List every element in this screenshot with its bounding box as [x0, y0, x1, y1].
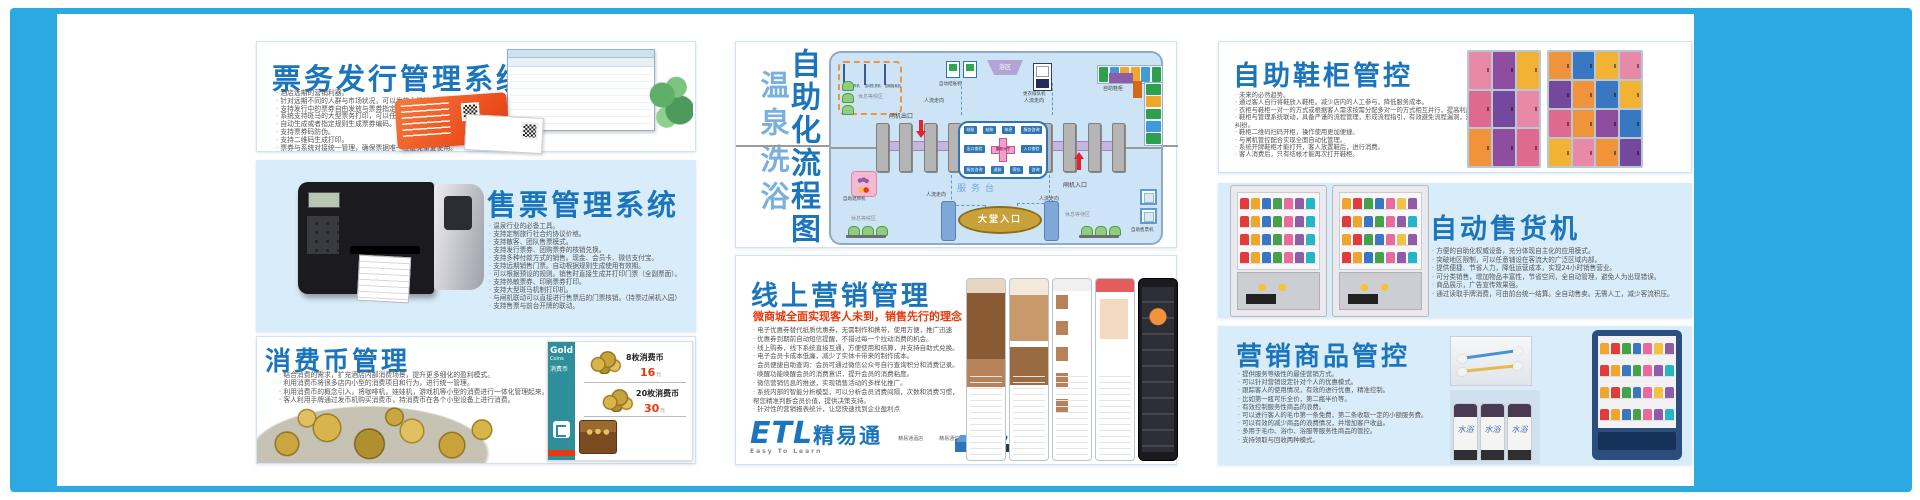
bullet-list: 电子优惠券替代纸质优惠券，无需制作和携带，使用方便，推广迅速优惠券到期前自动短信…	[753, 326, 965, 414]
phone-screenshot	[1052, 278, 1092, 461]
color-cell	[1549, 52, 1571, 79]
color-cell	[1262, 234, 1271, 245]
plant-decoration	[649, 74, 693, 134]
color-cell	[1620, 110, 1642, 137]
bottle-image: 水浴	[1453, 403, 1478, 461]
color-cell	[1240, 198, 1249, 209]
color-cell	[1611, 343, 1620, 354]
bullet-item: 跟踪客人的使用情况，有效的进行优惠，精准控制。	[1238, 386, 1448, 394]
coin-price-card: Gold Coins 消费币 8枚消费币 16 元 20枚消费币 30 元	[547, 341, 693, 461]
color-cell	[1469, 91, 1491, 128]
color-cell	[1306, 252, 1315, 263]
etl-logo-text: ETL	[750, 416, 813, 451]
return-machine-label: 自助退牌机	[843, 198, 866, 203]
color-cell	[1141, 67, 1150, 82]
exit-arrow-icon	[553, 421, 570, 438]
treasure-chest-image	[579, 420, 617, 454]
bullet-item: 会员便捷自助查询：会员可通过微信公众号自行查询积分和消费记录。	[753, 361, 965, 370]
coin-item-unit: 元	[656, 371, 661, 378]
color-cell	[1643, 365, 1652, 376]
bullet-item: 可以进行客人的毛巾第一条免费，第二条收取一定的小额服务费。	[1238, 411, 1448, 419]
vending-machine-icon: 自动售货机	[864, 65, 882, 89]
bottle-image: 水浴	[1507, 403, 1532, 461]
flow-line	[951, 205, 985, 206]
color-cell	[1364, 252, 1373, 263]
panel-ticket-issuing: 票务发行管理系统 酒店远期的营销利器。针对远期不同的人群与市场状况，可以发放大量…	[256, 41, 696, 152]
bullet-item: 唤醒功能唤醒会员的消费意识，提升会员的消费粘度。	[753, 370, 965, 379]
color-cell	[1251, 234, 1260, 245]
printer-buttons	[307, 216, 339, 254]
color-cell	[1517, 129, 1539, 166]
purple-cabinet	[1109, 73, 1133, 83]
vending-machine-image	[1230, 185, 1327, 317]
coin-item-price: 30	[644, 402, 659, 415]
service-chip: 结账	[983, 126, 996, 134]
card-brand: Gold	[548, 342, 575, 356]
service-chip: 休息	[1002, 126, 1015, 134]
snack-machine-base	[1598, 432, 1676, 450]
color-cell	[1517, 91, 1539, 128]
entry-check-chip: 入口查验	[1021, 145, 1042, 153]
bullet-item: 提供服务等级性的最佳营销方式。	[1238, 370, 1448, 378]
qr-code-icon	[521, 122, 539, 140]
wall-line	[736, 145, 829, 147]
color-cell	[1493, 129, 1515, 166]
color-cell	[1665, 365, 1674, 376]
color-cell	[1643, 387, 1652, 398]
red-strip	[548, 450, 575, 456]
color-cell	[1600, 387, 1609, 398]
color-cell	[1375, 198, 1384, 209]
bullet-item: 可分类销售，增加物品丰富性，节省空间，全自动管理，避免人为出现错误。	[1432, 273, 1682, 282]
color-cell	[1469, 52, 1491, 89]
sales-machine-icon: 自助贩卖机	[884, 65, 902, 89]
waiting-seats	[842, 81, 854, 115]
panel-subtitle: 微商城全面实现客人未到，销售先行的理念	[753, 308, 962, 324]
color-cell	[1273, 234, 1282, 245]
color-cell	[1620, 81, 1642, 108]
color-cell	[1600, 409, 1609, 420]
bullet-item: 方便的自助化权威设备，充分体现自主化的应用模式。	[1432, 247, 1682, 256]
auto-checkout-label: 自动结账机	[939, 83, 962, 88]
color-cell	[1306, 216, 1315, 227]
color-cell	[1493, 52, 1515, 89]
color-cell	[1573, 139, 1595, 166]
color-cell	[1375, 216, 1384, 227]
etl-logo-cn: 精易通	[813, 424, 882, 448]
color-cell	[1240, 216, 1249, 227]
bullet-item: 支持售票与前台开牌的联动。	[489, 302, 691, 310]
gate-entry-label: 闸机入口	[1063, 183, 1087, 189]
color-cell	[1386, 252, 1395, 263]
panel-ticket-sales: 售票管理系统 温泉行业的必备工具。支持定制旅行社合约协议价格。支持散客、团队售票…	[256, 160, 696, 332]
color-cell	[1284, 252, 1293, 263]
color-cell	[1240, 234, 1249, 245]
lobby-pillar	[941, 201, 956, 241]
flow-direction-label: 人流走向	[926, 193, 946, 198]
panel-consumption-coin: 消费币管理 结合消费的需求，扩充酒店内部消费场景，提升更多细化的盈利模式。利用消…	[256, 336, 696, 464]
divider	[584, 382, 686, 383]
color-cell	[1375, 234, 1384, 245]
flow-title-vertical: 自助化流程图	[780, 48, 824, 246]
service-chip: 寄存	[1010, 166, 1023, 174]
gate-pillar	[924, 123, 937, 172]
printer-lcd	[308, 192, 340, 208]
service-chip: 服务咨询	[1021, 126, 1042, 134]
auto-checkout-machines	[946, 61, 980, 82]
color-cell	[1408, 198, 1417, 209]
panel-title: 自助鞋柜管控	[1233, 54, 1413, 93]
panel-online-marketing: 线上营销管理 微商城全面实现客人未到，销售先行的理念 电子优惠券替代纸质优惠券，…	[735, 255, 1177, 465]
locker-grid	[1467, 50, 1541, 168]
return-machine	[851, 171, 877, 197]
color-cell	[1654, 365, 1663, 376]
rest-area-label: 休息等候区	[851, 217, 876, 222]
coin-item-name: 8枚消费币	[626, 352, 664, 363]
service-box: 结账结账休息服务咨询 出口查验 入口查验 服务大厅 服务咨询退账寄存咨询	[958, 121, 1048, 179]
color-cell	[1306, 234, 1315, 245]
rest-area-label: 休息等待区	[1065, 213, 1090, 218]
coin-pile-image	[588, 350, 622, 374]
color-cell	[1633, 387, 1642, 398]
snack-vending-photo	[1592, 330, 1682, 460]
color-cell	[1573, 110, 1595, 137]
bullet-item: 支持发行票券、团购票券的核销兑换。	[489, 246, 691, 254]
bullet-item: 通过读取手牌消费，可由前台统一结算。全自动售卖。无需人工，减少客流积压。	[1432, 290, 1682, 299]
color-cell	[1386, 216, 1395, 227]
printer-photo	[286, 168, 486, 324]
vending-machine-image	[1332, 185, 1429, 317]
color-cell	[1099, 67, 1108, 82]
phone-screenshot	[1138, 278, 1178, 461]
color-cell	[1654, 409, 1663, 420]
bullet-item: 电子优惠券替代纸质优惠券，无需制作和携带，使用方便，推广迅速	[753, 326, 965, 335]
color-cell	[1408, 216, 1417, 227]
color-cell	[1295, 216, 1304, 227]
color-cell	[1342, 234, 1351, 245]
phone-screenshot	[966, 278, 1006, 461]
bullet-item: 提供便捷、节省人力，降低运营成本，实现24小时销售营业。	[1432, 264, 1682, 273]
service-chip: 结账	[964, 126, 977, 134]
shoe-cabinet-label: 自助鞋柜	[1103, 87, 1123, 92]
bullet-item: 支持多种付款方式的销售。现金、会员卡、微信支付宝。	[489, 254, 691, 262]
screenshot-titlebar	[508, 50, 654, 58]
color-cell	[1284, 234, 1293, 245]
color-cell	[1622, 343, 1631, 354]
color-cell	[1408, 234, 1417, 245]
phone-screenshot	[1095, 278, 1135, 461]
color-cell	[1654, 387, 1663, 398]
flow-direction-label: 人流走向	[1024, 99, 1044, 104]
color-cell	[1549, 139, 1571, 166]
printer-window	[444, 196, 472, 230]
color-cell	[1573, 81, 1595, 108]
card-brand-cn: 消费币	[548, 362, 575, 375]
color-cell	[1146, 121, 1161, 132]
bottle-image: 水浴	[1480, 403, 1505, 461]
seat-base	[1079, 235, 1119, 238]
lobby-entrance: 大堂入口	[958, 206, 1042, 234]
screenshot-toolbar	[508, 58, 654, 67]
service-chip: 咨询	[1029, 166, 1042, 174]
gate-pillar	[1088, 123, 1101, 172]
shoe-cabinet-column	[1144, 82, 1163, 146]
color-cell	[1386, 234, 1395, 245]
coin-item-price: 16	[640, 366, 655, 379]
color-cell	[1633, 365, 1642, 376]
service-desk-label: 服务台	[957, 185, 999, 194]
color-cell	[1654, 343, 1663, 354]
color-cell	[1622, 387, 1631, 398]
bullet-item: 比如第一瓶可乐全价，第二瓶半价等。	[1238, 395, 1448, 403]
vending-zone-box: 自助售币机 自动售货机 自助贩卖机 休息等候区	[838, 61, 902, 115]
color-cell	[1284, 198, 1293, 209]
bullet-item: 优惠券到期前自动短信提醒，不错过每一个拉动消费的机会。	[753, 335, 965, 344]
poster-canvas: 票务发行管理系统 酒店远期的营销利器。针对远期不同的人群与市场状况，可以发放大量…	[0, 0, 1920, 500]
entry-arrow	[1077, 159, 1081, 170]
color-cell	[1240, 252, 1249, 263]
color-cell	[1364, 198, 1373, 209]
color-cell	[1146, 109, 1161, 120]
color-cell	[1596, 139, 1618, 166]
service-chip: 退账	[991, 166, 1004, 174]
rest-area-label: 休息等候区	[858, 95, 883, 100]
color-cell	[1295, 234, 1304, 245]
color-cell	[1596, 110, 1618, 137]
color-cell	[1386, 198, 1395, 209]
color-cell	[1600, 343, 1609, 354]
logo-item-info: 精易通信息	[939, 433, 964, 442]
ticket-slip-photo	[464, 114, 544, 154]
printer-side-cover	[434, 184, 484, 290]
color-cell	[1397, 234, 1406, 245]
logo-item-hotel: 精易通酒店	[898, 433, 923, 442]
seat-base	[846, 235, 886, 238]
bullet-item: 商品展示，广告宣传效果强。	[1432, 281, 1682, 290]
color-cell	[1295, 252, 1304, 263]
gate-pillar	[1112, 123, 1125, 172]
color-cell	[1284, 216, 1293, 227]
bullet-item: 支持定制旅行社合约协议价格。	[489, 230, 691, 238]
color-cell	[1273, 216, 1282, 227]
ticket-text-lines	[401, 102, 451, 139]
coin-pile-image	[600, 388, 634, 412]
color-cell	[1353, 198, 1362, 209]
color-cell	[1273, 252, 1282, 263]
bullet-list: 温泉行业的必备工具。支持定制旅行社合约协议价格。支持散客、团队售票模式。支持发行…	[489, 222, 691, 310]
printer-slot	[350, 246, 420, 254]
swab-blue	[1463, 349, 1517, 359]
color-cell	[1146, 84, 1161, 95]
color-cell	[1600, 365, 1609, 376]
color-cell	[1397, 216, 1406, 227]
bullet-item: 温泉行业的必备工具。	[489, 222, 691, 230]
color-cell	[1262, 198, 1271, 209]
phone-screenshot	[1009, 278, 1049, 461]
bullet-list: 提供服务等级性的最佳营销方式。可以针对营销设定针对个人的优惠模式。跟踪客人的使用…	[1238, 370, 1448, 444]
color-cell	[1306, 198, 1315, 209]
color-cell	[1262, 252, 1271, 263]
exit-arrow	[919, 120, 923, 131]
color-cell	[1643, 343, 1652, 354]
flow-line	[961, 81, 962, 115]
bullet-item: 支持领取与回收两种模式。	[1238, 436, 1448, 444]
queue-machine	[1033, 63, 1052, 91]
color-cell	[1620, 139, 1642, 166]
flow-line	[1052, 83, 1053, 115]
orange-cabinet	[1133, 81, 1142, 98]
color-cell	[1469, 129, 1491, 166]
bullet-item: 突破地区限制，可以任意铺设在客流大的广泛区域内部。	[1432, 256, 1682, 265]
bullet-item: 可以根据预设的规则。销售时直接生成并打印门票（全副票面）。	[489, 270, 691, 278]
color-cell	[1611, 409, 1620, 420]
service-cross-icon: 服务大厅	[991, 138, 1015, 162]
color-cell	[1251, 198, 1260, 209]
service-chips-bottom: 服务咨询退账寄存咨询	[964, 166, 1042, 174]
etl-logo: ETL精易通 Easy To Learn	[750, 420, 882, 454]
coin-item-name: 20枚消费币	[636, 388, 679, 399]
panel-vending-machine: 自动售货机 方便的自助化权威设备，充分体现自主化的应用模式。突破地区限制，可以任…	[1218, 183, 1692, 318]
color-cell	[1375, 252, 1384, 263]
bullet-list: 方便的自助化权威设备，充分体现自主化的应用模式。突破地区限制，可以任意铺设在客流…	[1432, 247, 1682, 298]
color-cell	[1262, 216, 1271, 227]
card-sidebar: Gold Coins 消费币	[548, 342, 575, 460]
panel-goods-control: 营销商品管控 提供服务等级性的最佳营销方式。可以针对营销设定针对个人的优惠模式。…	[1218, 326, 1692, 465]
color-cell	[1397, 252, 1406, 263]
lobby-pillar	[1044, 201, 1059, 241]
service-chip: 服务咨询	[964, 166, 985, 174]
color-cell	[1152, 67, 1161, 82]
exit-check-chip: 出口查验	[964, 145, 985, 153]
color-cell	[1342, 216, 1351, 227]
gate-pillar	[1063, 123, 1076, 172]
bullet-item: 电子会员卡成本低廉，减少了实体卡带来的制作成本。	[753, 352, 965, 361]
bullet-item: 多用于毛巾、浴巾、浴服等服务性商品的管控。	[1238, 427, 1448, 435]
color-cell	[1643, 409, 1652, 420]
queue-machine-label: 更衣排队机	[1023, 93, 1046, 98]
bullet-item: 微信营销信息的推送，实现销售活动的多样化推广。	[753, 379, 965, 388]
flow-diagram: 自助售币机 自动售货机 自助贩卖机 休息等候区 自动结账机 浴区 更衣排队机	[829, 51, 1163, 245]
color-cell	[1665, 387, 1674, 398]
color-cell	[1353, 252, 1362, 263]
printed-label	[357, 255, 411, 304]
swab-yellow	[1463, 364, 1517, 372]
color-cell	[1549, 81, 1571, 108]
bullet-item: 系统内部的智能分析模型，可以分析会员消费间隔，次数和消费习惯，帮您精准判断会员价…	[753, 388, 965, 406]
panel-title: 营销商品管控	[1236, 336, 1410, 373]
app-screenshots	[966, 278, 1178, 461]
bottles-photo: 水浴 水浴 水浴	[1450, 390, 1540, 464]
gate-pillar	[876, 123, 889, 172]
color-cell	[1397, 198, 1406, 209]
vending-machines-photo	[1230, 185, 1429, 317]
color-cell	[1665, 409, 1674, 420]
color-cell	[1251, 252, 1260, 263]
flow-direction-label: 人流走向	[924, 99, 944, 104]
color-cell	[1611, 365, 1620, 376]
panel-flow-diagram: 温泉洗浴 自助化流程图 自助售币机 自动售货机 自助贩卖机 休息等候区	[735, 41, 1177, 248]
swabs-photo	[1450, 336, 1532, 386]
color-cell	[1408, 252, 1417, 263]
color-cell	[1633, 409, 1642, 420]
self-ticket-machines	[1140, 189, 1157, 227]
bullet-item: 有效控制服务性商品的浪费。	[1238, 403, 1448, 411]
coin-item-unit: 元	[660, 407, 665, 414]
panel-shoe-cabinet: 自助鞋柜管控 未来的必然趋势。通过客人自行将鞋放入鞋柜。减少店内的人工参与，降低…	[1218, 41, 1692, 173]
color-cell	[1622, 365, 1631, 376]
gate-exit-label: 闸机出口	[889, 114, 913, 120]
color-cell	[1146, 133, 1161, 144]
coins-photo	[257, 399, 507, 463]
color-cell	[1342, 252, 1351, 263]
color-cell	[1273, 198, 1282, 209]
color-cell	[1596, 52, 1618, 79]
color-cell	[1665, 343, 1674, 354]
printer-body	[298, 182, 434, 294]
color-cell	[1364, 234, 1373, 245]
color-cell	[1573, 52, 1595, 79]
bullet-item: 支持远期销售门票。自动根据规则生成使用有效期。	[489, 262, 691, 270]
bullet-item: 支持散客、团队售票模式。	[489, 238, 691, 246]
color-cell	[1611, 387, 1620, 398]
locker-photo	[1467, 50, 1541, 168]
divider	[584, 416, 686, 417]
self-ticket-label: 自助售票机	[1131, 229, 1154, 234]
color-cell	[1622, 409, 1631, 420]
color-cell	[1295, 198, 1304, 209]
service-chips-top: 结账结账休息服务咨询	[964, 126, 1042, 134]
color-cell	[1251, 216, 1260, 227]
color-cell	[1549, 110, 1571, 137]
color-cell	[1364, 216, 1373, 227]
gate-pillar	[899, 123, 912, 172]
etl-logo-tagline: Easy To Learn	[750, 449, 882, 454]
color-cell	[1596, 81, 1618, 108]
color-cell	[1146, 96, 1161, 107]
color-cell	[1342, 198, 1351, 209]
panel-title: 售票管理系统	[487, 182, 679, 224]
color-cell	[1493, 91, 1515, 128]
locker-photo	[1547, 50, 1643, 168]
bath-zone: 浴区	[987, 60, 1023, 75]
bullet-item: 针对性的营销报表统计，让您快速找到企业盈利点	[753, 405, 965, 414]
panel-title: 自动售货机	[1430, 207, 1580, 246]
color-cell	[1353, 234, 1362, 245]
color-cell	[1633, 343, 1642, 354]
locker-grid	[1547, 50, 1643, 168]
color-cell	[1517, 52, 1539, 89]
color-cell	[1353, 216, 1362, 227]
color-cell	[1620, 52, 1642, 79]
